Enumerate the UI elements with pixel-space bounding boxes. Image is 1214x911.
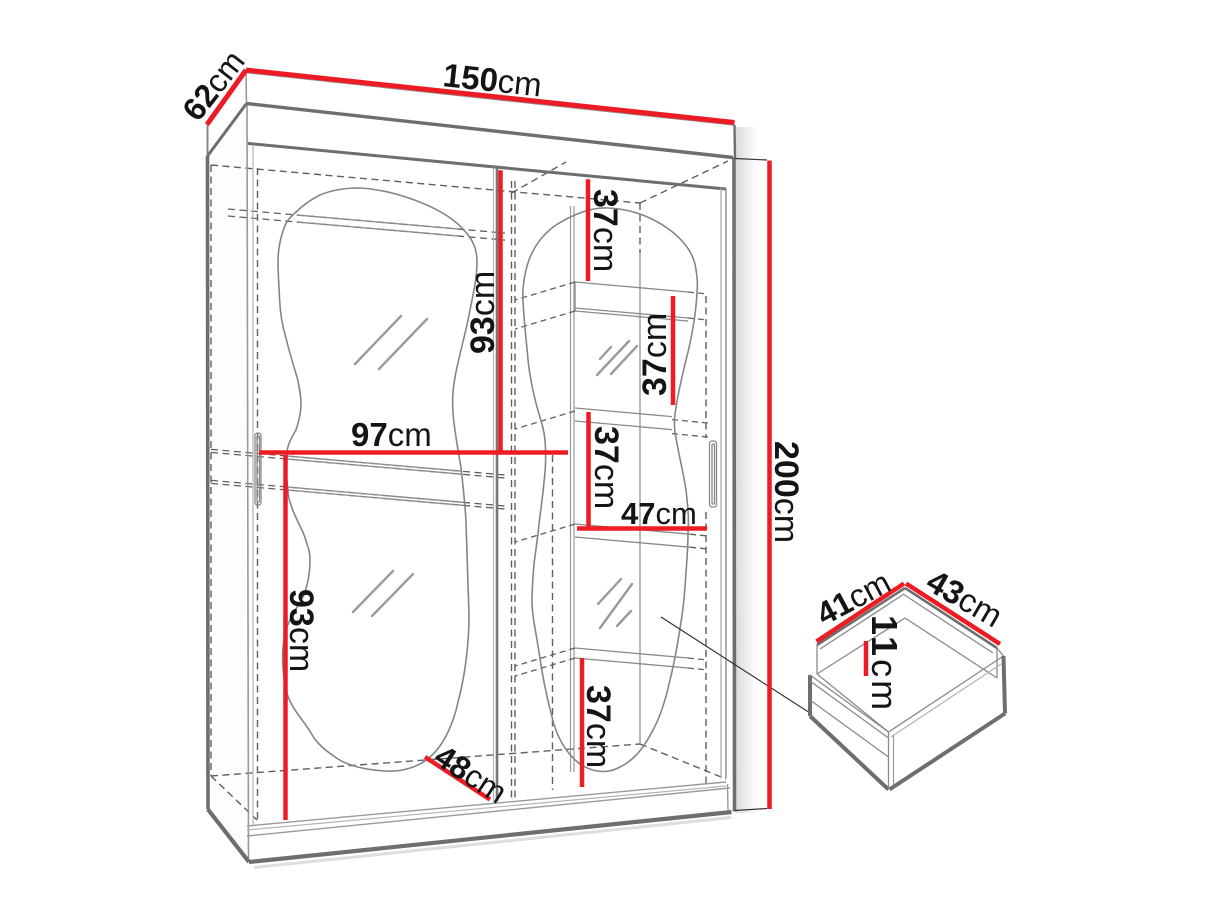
svg-text:200cm: 200cm xyxy=(767,441,805,543)
svg-text:11cm: 11cm xyxy=(864,615,905,713)
svg-text:37cm: 37cm xyxy=(579,685,617,768)
svg-text:97cm: 97cm xyxy=(351,416,432,453)
svg-text:47cm: 47cm xyxy=(621,496,697,531)
svg-text:93cm: 93cm xyxy=(464,271,502,354)
svg-text:37cm: 37cm xyxy=(636,313,674,396)
svg-text:37cm: 37cm xyxy=(587,426,625,509)
svg-text:37cm: 37cm xyxy=(586,189,624,272)
svg-text:93cm: 93cm xyxy=(282,589,320,672)
